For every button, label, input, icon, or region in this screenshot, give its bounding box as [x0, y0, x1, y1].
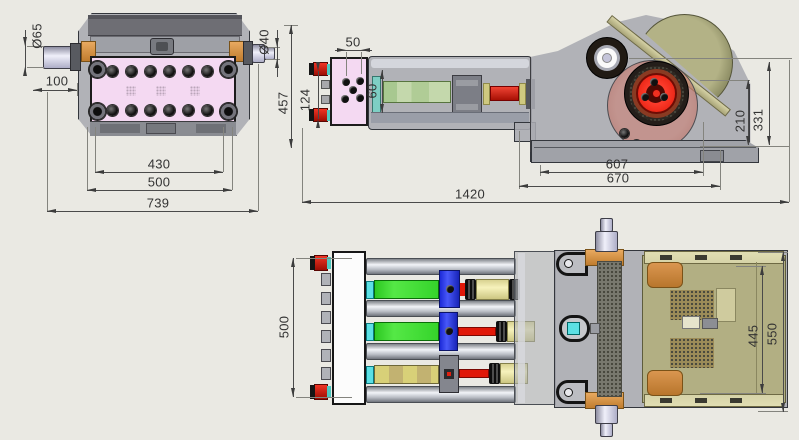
ext-line — [232, 127, 233, 190]
ext-line — [77, 83, 78, 96]
ext-line — [223, 127, 224, 172]
port-nub — [321, 95, 330, 104]
dim-line-445 — [762, 266, 763, 393]
bolt — [145, 66, 156, 77]
dim-arrow — [87, 188, 96, 192]
plunger-green — [374, 322, 439, 341]
dim-line-457 — [291, 25, 292, 148]
dim-arrow — [291, 258, 295, 267]
crosshead-rib — [456, 80, 478, 86]
crosshead-rib — [456, 104, 478, 110]
dim-label-124: 124 — [298, 89, 313, 112]
bolt — [620, 129, 629, 138]
frame-lower-rail — [371, 112, 529, 123]
dim-label-60: 60 — [365, 83, 380, 98]
bolt — [89, 61, 106, 78]
dim-arrow — [781, 252, 785, 261]
ext-line — [361, 52, 362, 74]
guard-gray-part — [702, 318, 718, 329]
bolt — [183, 66, 194, 77]
crankshaft-stub-bottom — [595, 405, 618, 424]
ext-line — [302, 128, 303, 202]
hub-lobe — [650, 78, 658, 86]
dim-arrow — [760, 384, 764, 393]
stud-hole — [356, 77, 364, 85]
ext-line — [346, 52, 347, 76]
guard-orange-part — [647, 262, 683, 288]
valve-cap — [321, 273, 331, 286]
dim-arrow — [275, 59, 279, 68]
bolt — [202, 105, 213, 116]
bolt — [202, 66, 213, 77]
dim-arrow — [380, 104, 384, 113]
stud-hole — [356, 94, 364, 102]
strip-slot — [660, 398, 672, 403]
bottom-band-detail — [146, 123, 176, 134]
hub-lobe — [641, 93, 649, 101]
dim-arrow — [746, 136, 750, 145]
bolt — [126, 66, 137, 77]
dim-label-739: 739 — [147, 196, 170, 211]
guide-cyan-core — [567, 322, 580, 335]
hub-center-dot — [652, 89, 661, 98]
dim-label-430: 430 — [148, 157, 171, 172]
suction-port-top-cap — [309, 63, 314, 75]
ext-line — [700, 393, 766, 394]
dim-line-670 — [519, 186, 720, 187]
guard-gear-texture — [670, 338, 714, 368]
rod-nut — [496, 321, 507, 342]
plunger-green — [374, 280, 439, 299]
dim-arrow — [249, 209, 258, 213]
hook-pin — [564, 388, 573, 397]
bolt — [107, 66, 118, 77]
stamp-mark — [156, 86, 166, 96]
frame-column — [597, 261, 622, 397]
dim-arrow — [33, 88, 42, 92]
guard-orange-part — [647, 370, 683, 396]
dim-label-331: 331 — [751, 109, 766, 132]
valve-cap — [321, 311, 331, 324]
dim-line-500b — [293, 258, 294, 397]
crankshaft-stub-bottom-tip — [600, 423, 613, 437]
ext-line — [720, 150, 721, 190]
frame-cross-highlight — [518, 253, 525, 403]
guard-white-detail — [682, 316, 700, 329]
dim-arrow — [95, 170, 104, 174]
ext-line — [700, 146, 790, 147]
dim-arrow — [540, 170, 549, 174]
bottom-band-detail — [196, 124, 226, 133]
dim-label-607: 607 — [606, 157, 629, 172]
dim-arrow — [380, 70, 384, 79]
dim-label-1420: 1420 — [455, 187, 485, 202]
rod-nut — [465, 279, 476, 300]
connecting-rod-red — [458, 327, 496, 336]
rod-collar — [519, 83, 526, 105]
guide-stub — [590, 323, 600, 334]
stamp-mark — [126, 86, 136, 96]
dim-arrow — [694, 170, 703, 174]
ext-line — [700, 80, 750, 81]
suction-manifold-block — [332, 251, 366, 405]
seal-cyan — [366, 323, 374, 341]
crosshead-red-pip — [447, 372, 451, 376]
housing-dark-band — [88, 19, 242, 36]
dim-label-100: 100 — [46, 74, 69, 89]
dim-arrow — [47, 209, 56, 213]
dim-arrow — [711, 184, 720, 188]
dim-label-445: 445 — [746, 325, 761, 348]
plunger-side — [383, 81, 451, 103]
pinion-shaft-end — [602, 53, 612, 63]
dim-arrow — [361, 48, 370, 52]
strip-slot — [730, 398, 742, 403]
ext-line — [27, 67, 44, 68]
strip-slot — [730, 255, 742, 260]
dim-arrow — [316, 62, 320, 71]
bolt — [164, 105, 175, 116]
bolt — [220, 103, 237, 120]
cad-drawing-canvas: Ø65 100 Ø40 430 500 739 — [0, 0, 799, 440]
plunger-olive — [374, 365, 439, 384]
hub-lobe — [660, 93, 668, 101]
ext-line — [629, 58, 792, 59]
crosshead-bolt — [446, 285, 454, 293]
dim-line-1420 — [302, 202, 789, 203]
dim-label-210: 210 — [733, 110, 748, 133]
dim-arrow — [746, 80, 750, 89]
stud-hole — [342, 78, 350, 86]
crankshaft-stub-top-tip — [600, 218, 613, 232]
dim-arrow — [781, 403, 785, 412]
dim-arrow — [68, 88, 77, 92]
rod-collar — [483, 83, 490, 105]
crosshead-cylinder-yellow — [476, 279, 509, 300]
dim-arrow — [780, 200, 789, 204]
gearbox-edge — [530, 57, 531, 152]
crankshaft-stub-top — [595, 231, 618, 252]
dim-arrow — [223, 188, 232, 192]
dim-arrow — [23, 67, 27, 76]
bolt — [145, 105, 156, 116]
ext-line — [95, 127, 96, 172]
dim-label-dia40: Ø40 — [257, 29, 272, 54]
bolt — [183, 105, 194, 116]
bolt — [89, 103, 106, 120]
dim-label-670: 670 — [607, 171, 630, 186]
ext-line — [87, 127, 88, 190]
bottom-band-detail — [100, 124, 140, 133]
valve-cap — [321, 349, 331, 362]
dim-arrow — [214, 170, 223, 174]
valve-cap — [321, 292, 331, 305]
rod-nut — [489, 363, 500, 384]
dim-arrow — [519, 184, 528, 188]
ext-line — [47, 92, 48, 211]
connecting-rod-red — [459, 369, 489, 378]
ext-line — [519, 131, 520, 189]
bolt — [126, 105, 137, 116]
strip-slot — [695, 398, 707, 403]
dim-line-430 — [95, 172, 223, 173]
dim-line-331 — [769, 62, 770, 145]
stamp-mark — [190, 86, 200, 96]
dim-arrow — [316, 119, 320, 128]
drive-shaft-left-collar — [70, 43, 81, 71]
dim-label-500b: 500 — [277, 316, 292, 339]
ext-line — [296, 397, 352, 398]
dim-arrow — [767, 62, 771, 71]
dim-arrow — [302, 200, 311, 204]
gearbox-base — [531, 140, 759, 163]
drive-shaft-left — [43, 46, 72, 69]
stud-hole — [341, 95, 349, 103]
ext-line — [258, 64, 259, 211]
frame-highlight — [371, 59, 529, 68]
ext-line — [789, 60, 790, 202]
valve-cap — [321, 330, 331, 343]
dim-arrow — [291, 388, 295, 397]
seal-cyan — [366, 366, 374, 384]
guard-light-block — [716, 288, 736, 322]
strip-slot — [695, 255, 707, 260]
ext-line — [703, 122, 704, 176]
bolt — [107, 105, 118, 116]
dim-arrow — [767, 136, 771, 145]
ext-line — [296, 258, 352, 259]
dim-line-500 — [87, 190, 232, 191]
dim-arrow — [289, 25, 293, 34]
dim-arrow — [23, 37, 27, 46]
dim-label-550: 550 — [765, 323, 780, 346]
dim-arrow — [289, 139, 293, 148]
crosshead-bolt — [445, 327, 453, 335]
stud-hole — [349, 86, 357, 94]
bolt — [164, 66, 175, 77]
dim-label-dia65: Ø65 — [30, 23, 45, 48]
port-nub — [321, 80, 330, 89]
connecting-rod-side — [490, 86, 519, 101]
strip-slot — [660, 255, 672, 260]
dim-label-50: 50 — [345, 35, 360, 50]
dim-label-457: 457 — [276, 92, 291, 115]
hook-pin — [564, 259, 573, 268]
lift-latch-inner — [156, 42, 168, 51]
dim-line-550 — [783, 252, 784, 412]
valve-cap — [321, 367, 331, 380]
dim-line-124 — [318, 71, 319, 119]
bolt — [220, 61, 237, 78]
dim-label-500: 500 — [148, 175, 171, 190]
base-seam — [534, 147, 756, 148]
dim-arrow — [760, 266, 764, 275]
dim-arrow — [275, 38, 279, 47]
dim-line-739 — [47, 211, 258, 212]
seal-cyan — [366, 281, 374, 299]
